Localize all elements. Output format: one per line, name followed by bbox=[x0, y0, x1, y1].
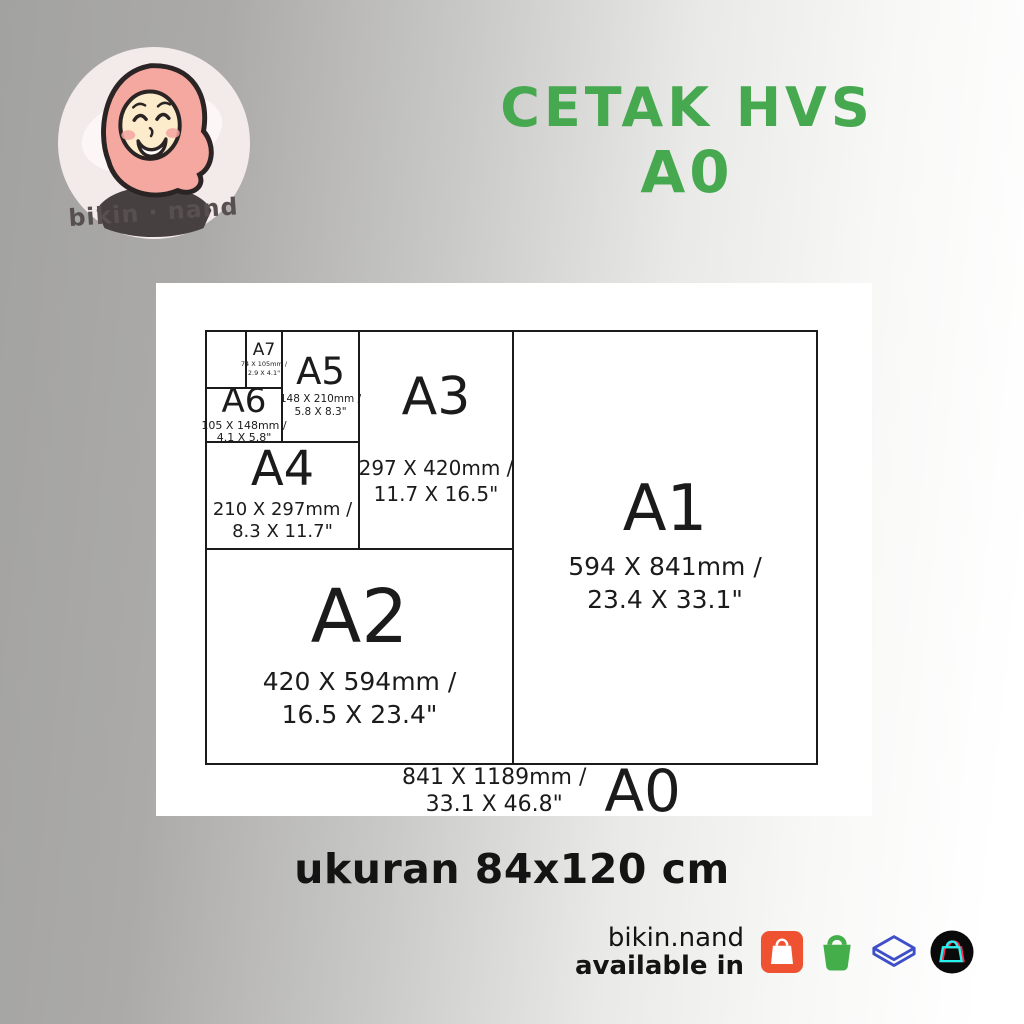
paper-size-dims-a0: 841 X 1189mm / 33.1 X 46.8" bbox=[402, 764, 586, 819]
paper-size-chart-card: A7 74 X 105mm / 2.9 X 4.1" A5 148 X 210m… bbox=[156, 283, 872, 816]
product-image: bikin · nand CETAK HVS A0 A7 74 X 105mm … bbox=[0, 0, 1024, 1024]
tiktok-shop-icon bbox=[930, 929, 974, 975]
dims-mm: 841 X 1189mm / bbox=[402, 764, 586, 792]
dims-mm: 420 X 594mm / bbox=[263, 666, 457, 699]
tokopedia-icon bbox=[816, 929, 858, 975]
paper-size-dims-a3: 297 X 420mm / 11.7 X 16.5" bbox=[359, 455, 514, 507]
dims-inch: 2.9 X 4.1" bbox=[241, 369, 287, 377]
dims-inch: 16.5 X 23.4" bbox=[263, 699, 457, 732]
paper-size-cell-a5: A5 148 X 210mm / 5.8 X 8.3" bbox=[283, 332, 360, 443]
shopee-icon bbox=[760, 929, 804, 975]
paper-size-cell-a1: A1 594 X 841mm / 23.4 X 33.1" bbox=[514, 332, 816, 763]
paper-size-cell-a3: A3 297 X 420mm / 11.7 X 16.5" bbox=[360, 332, 514, 550]
paper-size-dims-a7: 74 X 105mm / 2.9 X 4.1" bbox=[241, 360, 287, 376]
dims-mm: 74 X 105mm / bbox=[241, 360, 287, 368]
dims-mm: 297 X 420mm / bbox=[359, 455, 514, 481]
footer-available-in: bikin.nand available in bbox=[575, 924, 974, 980]
paper-size-label-a0: A0 bbox=[604, 762, 681, 820]
paper-size-label-a5: A5 bbox=[296, 354, 345, 389]
bikin-nand-logo: bikin · nand bbox=[55, 42, 253, 244]
paper-size-label-a2: A2 bbox=[311, 582, 409, 652]
size-note: ukuran 84x120 cm bbox=[0, 845, 1024, 893]
dims-inch: 33.1 X 46.8" bbox=[402, 791, 586, 819]
blush-right bbox=[166, 128, 180, 138]
blush-left bbox=[121, 130, 135, 140]
paper-size-dims-a2: 420 X 594mm / 16.5 X 23.4" bbox=[263, 666, 457, 731]
paper-size-cell-a6: A6 105 X 148mm / 4.1 X 5.8" bbox=[207, 389, 283, 443]
footer-text: bikin.nand available in bbox=[575, 924, 744, 980]
lazada-chevron-icon bbox=[870, 932, 918, 972]
dims-inch: 8.3 X 11.7" bbox=[213, 521, 352, 544]
paper-size-label-a6: A6 bbox=[222, 385, 267, 417]
dims-mm: 148 X 210mm / bbox=[280, 393, 361, 406]
footer-available-label: available in bbox=[575, 952, 744, 980]
paper-size-label-a7: A7 bbox=[253, 342, 275, 358]
dims-inch: 11.7 X 16.5" bbox=[359, 481, 514, 507]
paper-size-label-a3: A3 bbox=[402, 373, 471, 422]
paper-size-label-a4: A4 bbox=[251, 447, 314, 493]
paper-size-cell-a4: A4 210 X 297mm / 8.3 X 11.7" bbox=[207, 443, 360, 550]
dims-inch: 5.8 X 8.3" bbox=[280, 406, 361, 419]
paper-size-row-a0: 841 X 1189mm / 33.1 X 46.8" A0 bbox=[235, 762, 848, 820]
paper-size-dims-a1: 594 X 841mm / 23.4 X 33.1" bbox=[568, 551, 762, 616]
dims-inch: 23.4 X 33.1" bbox=[568, 584, 762, 617]
dims-mm: 210 X 297mm / bbox=[213, 499, 352, 522]
paper-size-cell-a2: A2 420 X 594mm / 16.5 X 23.4" bbox=[207, 550, 514, 763]
dims-mm: 594 X 841mm / bbox=[568, 551, 762, 584]
paper-size-diagram: A7 74 X 105mm / 2.9 X 4.1" A5 148 X 210m… bbox=[205, 330, 818, 765]
paper-size-dims-a4: 210 X 297mm / 8.3 X 11.7" bbox=[213, 499, 352, 544]
paper-size-dims-a5: 148 X 210mm / 5.8 X 8.3" bbox=[280, 393, 361, 419]
headline: CETAK HVS A0 bbox=[492, 74, 882, 202]
headline-line-1: CETAK HVS bbox=[492, 74, 882, 142]
paper-size-label-a1: A1 bbox=[623, 479, 708, 540]
headline-line-2: A0 bbox=[492, 142, 882, 203]
footer-brand-name: bikin.nand bbox=[575, 924, 744, 952]
